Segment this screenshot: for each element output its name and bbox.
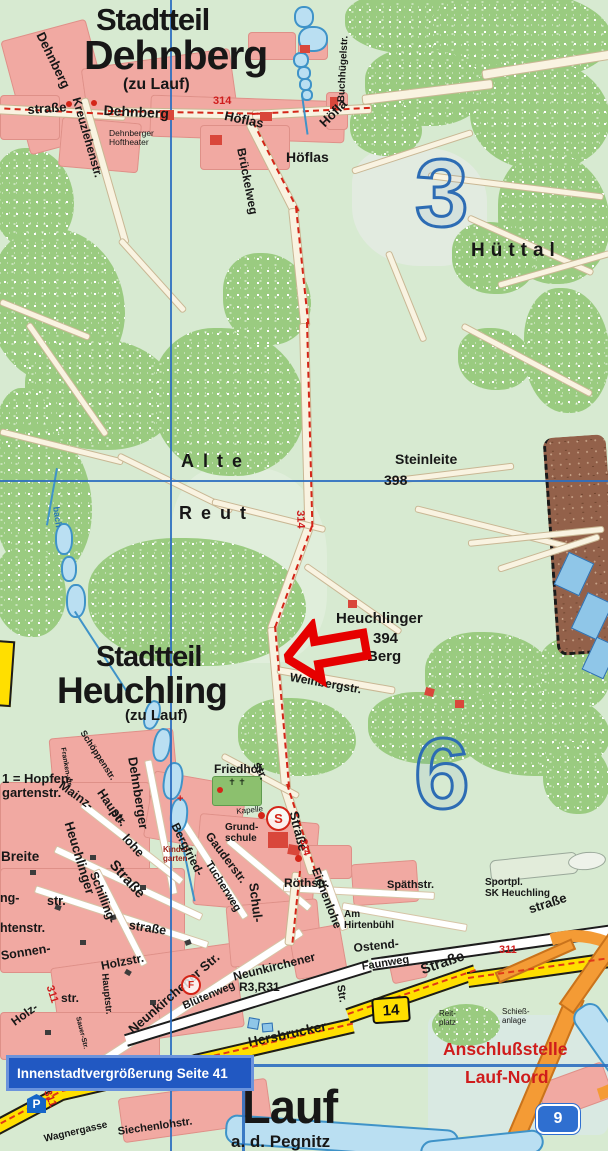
place-title-dehnberg: Dehnberg [84, 33, 267, 78]
place-title-lauf: Lauf [242, 1081, 337, 1133]
road-edge [0, 640, 15, 707]
place-title-lauf-suffix: a. d. Pegnitz [231, 1133, 330, 1151]
area-breite: Breite [1, 850, 39, 865]
grid-number-3: 3 [415, 146, 468, 242]
building-small [80, 940, 86, 945]
poi-hoftheater: Dehnberger Hoftheater [109, 129, 154, 148]
street-label-str5: Str. [334, 984, 349, 1003]
forest [524, 288, 608, 413]
poi-grundschule: Grund- schule [225, 822, 258, 844]
school-icon: S [266, 806, 291, 831]
poi-reitplatz: Reit- platz [439, 1010, 456, 1028]
building-small [184, 939, 191, 946]
pond [55, 523, 73, 555]
route-number-311: 311 [499, 944, 517, 956]
grid-line-horizontal [0, 480, 608, 482]
street-label-buchhuegelstr: Buchhügelstr. [336, 35, 350, 102]
b14-number: 14 [382, 1001, 400, 1019]
grid-line-vertical [170, 0, 172, 1151]
route-number-314: 314 [294, 510, 307, 529]
pond [294, 6, 314, 28]
street-label-spaethstr: Späthstr. [387, 879, 434, 891]
building-small [90, 855, 96, 860]
school-icon-letter: S [274, 811, 283, 826]
area-heuchlinger-berg-2: 394 [373, 631, 398, 648]
grid-number-6: 6 [414, 724, 470, 824]
highlight-arrow-icon [279, 610, 376, 694]
a9-number: 9 [554, 1110, 563, 1128]
street-label-htenstr: htenstr. [0, 922, 45, 936]
route-number-314: 314 [213, 95, 231, 107]
stream-label-bach: bach [50, 506, 63, 528]
route-label-r3r31: R3,R31 [239, 981, 280, 994]
street-label-ng: ng- [0, 892, 19, 906]
street-label-am-hirtenbuehl: Am Hirtenbühl [344, 909, 394, 931]
poi-sportplatz: Sportpl. SK Heuchling [485, 877, 550, 899]
street-label-str4: str. [61, 992, 79, 1005]
place-title-dehnberg-zu-lauf: (zu Lauf) [123, 76, 190, 94]
inset-banner-text: Innenstadtvergrößerung Seite 41 [17, 1066, 228, 1081]
building [455, 700, 464, 708]
halt-icon-letter: F [188, 980, 194, 991]
road-badge-b14: 14 [371, 996, 411, 1025]
street-label-wagnergasse: Wagnergasse [43, 1119, 108, 1144]
street-label-str2: str. [47, 895, 66, 909]
building [300, 45, 310, 53]
kindergarten-cross: + [177, 793, 183, 805]
bus-halt-icon: F [181, 975, 201, 995]
area-steinleite: Steinleite [395, 452, 457, 467]
inset-line-horizontal [245, 1064, 608, 1067]
building [210, 135, 222, 145]
road-lane [117, 237, 187, 314]
area-alte: Alte [181, 452, 251, 472]
junction-dot [91, 100, 97, 106]
school-building [268, 832, 288, 848]
building-small [45, 1030, 51, 1035]
poi-lauf-nord: Lauf-Nord [465, 1068, 549, 1087]
motorway-badge-a9: 9 [536, 1104, 580, 1134]
place-title-heuchling: Heuchling [57, 671, 227, 712]
poi-anschlussstelle: Anschlußstelle [443, 1040, 567, 1059]
place-hoeflas: Höflas [286, 150, 329, 165]
cemetery-dot [217, 787, 223, 793]
area-huettal: Hüttal [471, 241, 561, 262]
cemetery-crosses: ✝ ✝ [228, 777, 246, 787]
street-label-ostend: Ostend- [353, 937, 399, 955]
parking-icon-letter: P [32, 1097, 40, 1111]
building-small [30, 870, 36, 875]
poi-schiessanlage: Schieß- anlage [502, 1008, 530, 1026]
forest [543, 742, 608, 814]
place-title-heuchling-zu-lauf: (zu Lauf) [125, 708, 187, 725]
street-label-strasse-w: straße [27, 100, 67, 117]
map-canvas[interactable]: ✝ ✝ Stadtteil Dehnberg (zu Lauf) Dehnber… [0, 0, 608, 1151]
blue-symbol [247, 1017, 260, 1030]
pond [61, 556, 77, 582]
area-steinleite-elevation: 398 [384, 473, 407, 488]
inset-banner: Innenstadtvergrößerung Seite 41 [6, 1055, 254, 1091]
building [348, 600, 357, 608]
area-reut: Reut [179, 504, 255, 524]
